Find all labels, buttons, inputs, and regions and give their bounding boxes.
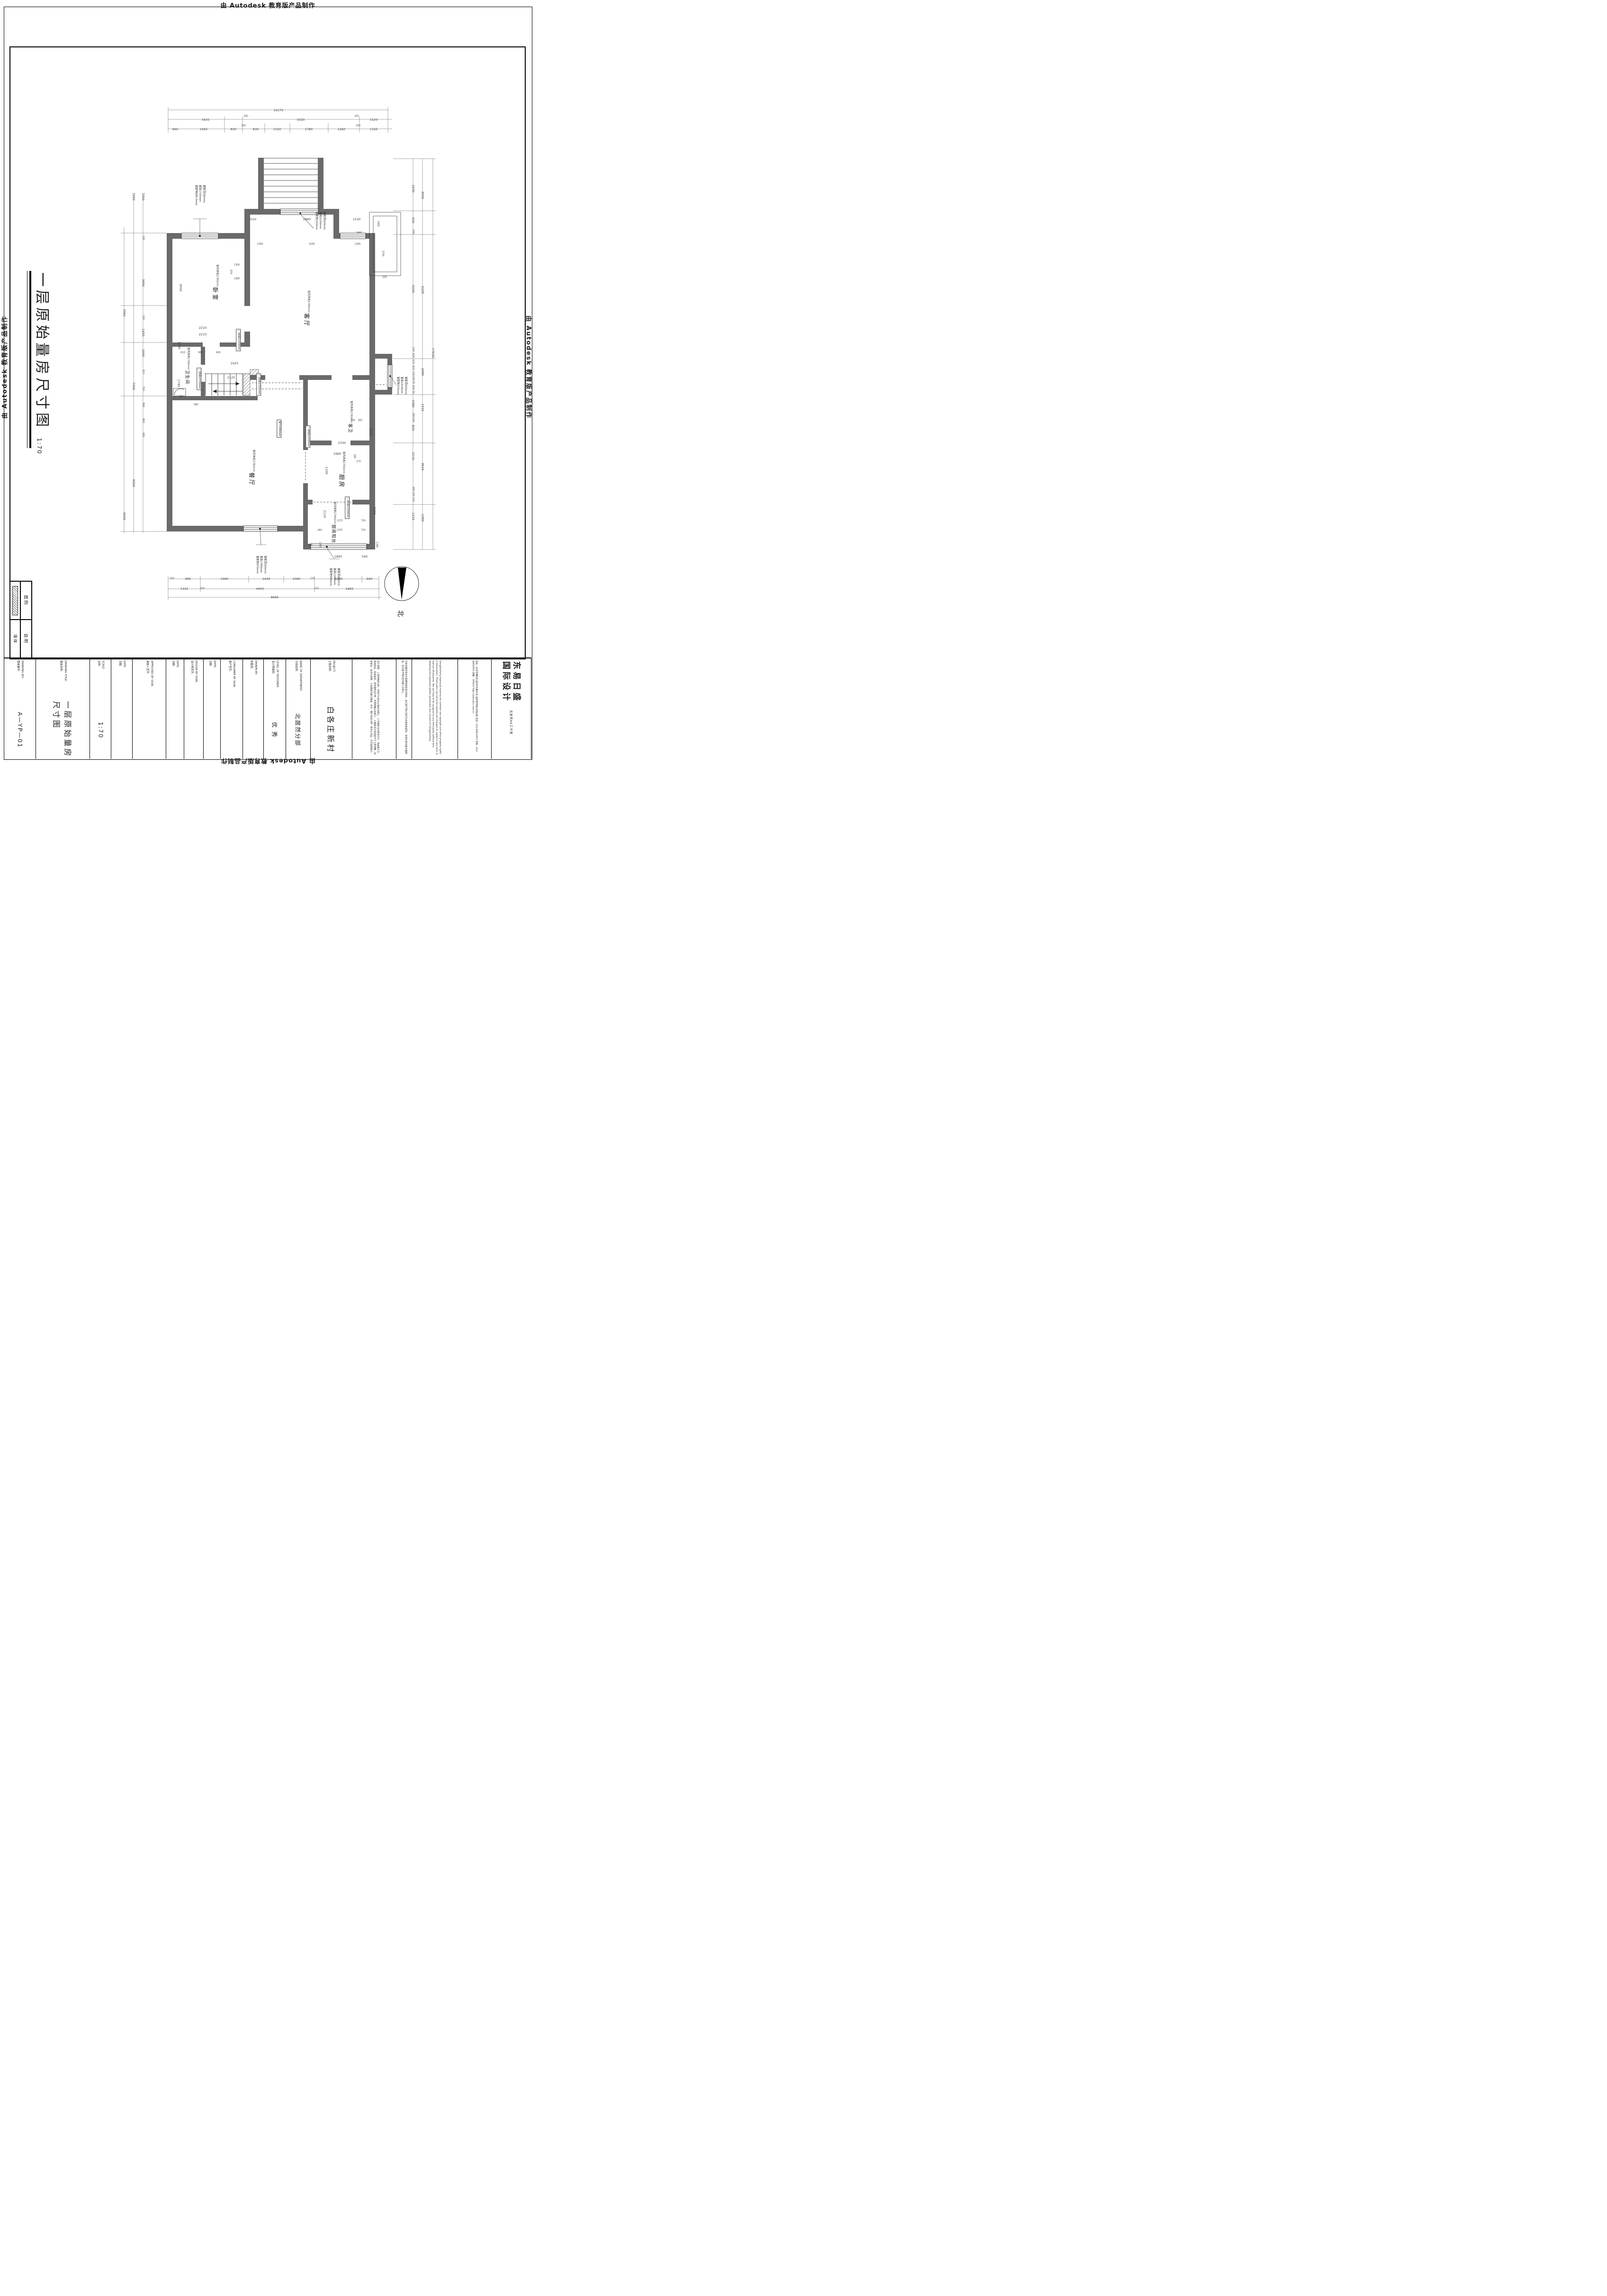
dim-label: 280 [353, 454, 356, 459]
dim-label: 3350 [142, 193, 145, 201]
dim-label: 1260 [355, 243, 361, 246]
door-height-label: 门洞高2150mm [345, 496, 350, 519]
titleblock-field-label: DRAWING NO:图纸编号: [15, 660, 24, 701]
room-label: 客卫室内净高2780mm [348, 401, 354, 433]
room-name: 客厅 [303, 313, 311, 327]
room-name: 厨房 [338, 474, 346, 488]
titleblock-notes: 地址：北京市朝阳区北四环东路65号 居然装饰城2号馆4层 电话：010-8483… [471, 660, 478, 755]
dim-label: 2110 [323, 510, 326, 518]
dim-label: 70 [412, 381, 414, 384]
dim-label: 10175 [274, 109, 284, 112]
window-annotation-line: 窗距顶400mm [322, 212, 326, 230]
dim-label: 5220 [412, 285, 415, 293]
window-annotation: 窗距顶380mm窗高1720mm窗距地680.0mm [194, 185, 206, 206]
window-annotation-line: 窗高1780mm [259, 556, 263, 574]
dim-label: 980 [194, 404, 198, 406]
dim-label: 985 [185, 577, 191, 581]
dim-label: 100 [412, 376, 414, 380]
titleblock-field-value: A—YP—01 [17, 701, 23, 759]
dim-label: 830 [253, 128, 259, 131]
dim-label: 1100 [325, 467, 328, 475]
dim-label: 330 [170, 578, 174, 580]
titleblock-field-label: DATE:日期: [117, 660, 126, 701]
dim-label: 260 [358, 420, 362, 422]
dim-label: 430 [412, 385, 414, 390]
titleblock-cell: DATE:日期: [111, 658, 133, 759]
dim-label: 640 [367, 577, 372, 581]
dim-label: 7450 [132, 382, 135, 390]
dim-label: 913 [142, 369, 144, 374]
dim-label: 1945 [200, 128, 208, 131]
dim-label: 3950 [179, 284, 182, 292]
dim-label: 1410 [421, 404, 424, 412]
dim-label: 820 [412, 425, 415, 431]
titleblock-cell: DRAWING TITLE:图纸名称:一层原始量房尺寸图 [36, 658, 90, 759]
dim-label: 1010 [249, 218, 257, 221]
window-annotation: 窗距顶460mm窗高1340mm窗距地980mm [329, 568, 341, 586]
dim-label: 1150 [273, 128, 281, 131]
window-annotation-line: 窗距顶460mm [336, 568, 340, 586]
titleblock-notes: 东易日盛享有本方案拥有版权及所有权，本方案不得以任何方式修改及复制，未经东易日盛… [400, 660, 407, 755]
window-annotation: 窗距顶400mm窗高1410mm窗距地970mm [396, 377, 408, 395]
window-annotation-line: 窗距地680.0mm [194, 185, 198, 206]
dim-label: 235 [310, 578, 315, 580]
dim-label: 420 [412, 365, 414, 370]
window-annotation-line: 窗距地970mm [396, 377, 400, 395]
dim-label: 1895 [334, 555, 342, 558]
room-height-note: 室内净高2780mm [331, 502, 337, 524]
dim-label: 17630 [431, 348, 435, 358]
dim-label: 150 [412, 371, 414, 376]
dim-label: 3350 [132, 193, 135, 201]
dim-label: 7060 [123, 309, 126, 317]
dim-label: 50 [412, 391, 414, 394]
dim-label: 6050 [123, 513, 126, 521]
dim-label: 1375 [337, 520, 343, 522]
titleblock-cell: 地址：北京市朝阳区北四环东路65号 居然装饰城2号馆4层 电话：010-8483… [458, 658, 492, 759]
dim-label: 200 [200, 588, 205, 590]
titleblock-field-label: NAME OF DEPARTMENT:分部名称: [294, 660, 303, 701]
room-height-note: 室内净高2780mm [185, 347, 191, 369]
dim-label: 1030 [178, 342, 181, 350]
room-name: 卧室 [212, 287, 220, 301]
room-label: 卧室室内净高2780mm [212, 264, 220, 301]
dim-label: 5020 [297, 118, 305, 122]
titleblock-field-label: DRAWING TITLE:图纸名称: [58, 660, 67, 701]
titleblock-field-label: DESIGN BY SIGN:设计师签字: [189, 660, 198, 701]
dim-label: 420 [412, 353, 414, 358]
dim-label: 400 [412, 486, 414, 491]
dim-label: 8665 [271, 596, 279, 599]
dim-label: 360 [317, 530, 322, 532]
dim-label: 730 [361, 530, 366, 532]
title-block: DRAWING NO:图纸编号:A—YP—01DRAWING TITLE:图纸名… [4, 657, 531, 759]
dim-label: 330 [179, 396, 183, 398]
titleblock-cell: APPROVED BY SIGN:审核人签字: [133, 658, 166, 759]
room-name: 卫生间 [185, 370, 191, 384]
window-annotation-line: 窗距地980mm [329, 568, 332, 586]
dim-label: 920 [412, 217, 415, 223]
dim-label: 1450 [142, 329, 145, 337]
room-label: 厨房阳台室内净高2780mm [331, 502, 337, 543]
window-annotation-line: 窗高1410mm [400, 377, 404, 395]
dim-label: 130 [314, 588, 319, 590]
dim-label: 750 [142, 386, 144, 391]
dim-label: 1780 [305, 128, 313, 131]
room-height-note: 室内净高2780mm [212, 264, 220, 287]
room-label: 厨房室内净高2780mm [338, 451, 346, 488]
titleblock-cell: Dongyirisheng Expressly reserves its com… [412, 658, 458, 759]
dim-label: 900 [198, 352, 203, 354]
dim-label: 1460 [356, 232, 362, 234]
room-label: 卫生间室内净高2780mm [185, 347, 191, 384]
dim-label: 1320 [370, 128, 378, 131]
dim-label: 1430 [262, 577, 270, 581]
titleblock-cell: DRAWING NO:图纸编号:A—YP—01 [4, 658, 36, 759]
dim-label: 2210 [199, 326, 207, 330]
window-annotation-line: 窗高1720mm [198, 185, 202, 206]
dim-label: 200 [241, 125, 246, 127]
titleblock-field-label: DRAWN BY:制图员: [249, 660, 258, 701]
dim-label: 860 [142, 403, 144, 407]
dim-label: 800 [142, 418, 144, 423]
room-name: 餐厅 [248, 472, 256, 486]
titleblock-cell: PROJECT:工程名称:白各庄新村 [311, 658, 353, 759]
dim-label: 125 [308, 545, 313, 547]
dim-label: 2210 [199, 333, 207, 336]
dim-label: 1380 [234, 278, 240, 280]
dim-label: 200 [354, 116, 359, 118]
titleblock-field-label: PROJECT:工程名称: [327, 660, 336, 701]
room-label: 餐厅室内净高2780mm [248, 450, 256, 486]
titleblock-field-label: LEVEL OF DESIGNER:设计师级别: [270, 660, 279, 701]
dim-label: 270 [356, 461, 361, 463]
dim-label: 1300 [234, 264, 240, 267]
window-annotation-line: 窗距地150mm [314, 212, 318, 230]
dim-label: 200 [412, 229, 414, 234]
beam-height-label: 梁下290mm [277, 420, 281, 438]
dim-label: 1930 [309, 243, 315, 246]
dim-label: 1385 [319, 542, 321, 548]
titleblock-cell: DESIGN BY SIGN:设计师签字: [184, 658, 204, 759]
room-name: 厨房阳台 [331, 524, 337, 543]
window-annotation: 窗距顶400mm窗高2230mm窗距地150mm [314, 212, 326, 230]
room-height-note: 室内净高2780mm [303, 290, 311, 313]
dim-label: 150 [412, 347, 414, 351]
dim-label: 100 [412, 417, 414, 422]
titleblock-notes: Dongyirisheng Expressly reserves its com… [428, 660, 441, 755]
window-annotation-line: 窗距顶380mm [202, 185, 206, 206]
dim-label: 280 [412, 413, 414, 417]
plan-labels-layer: 1017534355020152020020066019458308301150… [0, 0, 536, 765]
dim-label: 1080 [412, 400, 415, 408]
dim-label: 1210 [412, 513, 415, 521]
window-annotation-line: 窗距地970mm [255, 556, 259, 574]
dim-label: 100 [142, 315, 144, 320]
titleblock-cell: SCALE:比例:1:70 [90, 658, 111, 759]
dim-label: 2330 [338, 441, 346, 445]
room-height-note: 室内净高2780mm [348, 401, 354, 423]
dim-label: 200 [243, 116, 248, 118]
titleblock-notes: 设计说明： 1.除特殊标注外，所有尺寸标注以毫米为单位。 2.平面标注为参考尺寸… [369, 660, 379, 755]
dim-label: 1925 [231, 362, 239, 365]
titleblock-field-label: DATE:日期: [207, 660, 216, 701]
dim-label: 540 [362, 555, 368, 558]
titleblock-cell: NAME OF DEPARTMENT:分部名称:北居然分部 [286, 658, 311, 759]
dim-label: 730 [361, 520, 366, 522]
company-name: 东易日盛 国际设计 [501, 661, 521, 710]
dim-label: 200 [142, 235, 144, 240]
titleblock-field-label: CONSUMER BY SIGN:客户签字: [227, 660, 236, 701]
dim-label: 660 [172, 128, 178, 131]
door-height-label: 门洞高2150mm [197, 368, 201, 390]
titleblock-cell: 东易日盛享有本方案拥有版权及所有权，本方案不得以任何方式修改及复制，未经东易日盛… [396, 658, 412, 759]
dim-label: 1520 [370, 118, 378, 122]
titleblock-field-label: DATE:日期: [171, 660, 180, 701]
room-label: 客厅室内净高2780mm [303, 290, 311, 327]
dim-label: 3950 [142, 279, 145, 287]
dim-label: 1375 [337, 530, 343, 532]
dim-label: 5220 [421, 286, 424, 294]
dim-label: 150 [412, 497, 414, 502]
dim-label: 2110 [412, 452, 415, 460]
dim-label: 600 [216, 352, 221, 354]
dim-label: 4450 [256, 587, 264, 591]
window-annotation-line: 窗高2230mm [318, 212, 322, 230]
titleblock-field-value: 1:70 [97, 701, 104, 759]
dim-label: 3550 [421, 191, 424, 199]
dim-label: 1385 [376, 542, 378, 548]
dim-label: 2080 [421, 368, 424, 376]
titleblock-cell: LEVEL OF DESIGNER:设计师级别:优 秀 [264, 658, 286, 759]
dim-label: 3435 [202, 118, 210, 122]
titleblock-cell: DATE:日期: [204, 658, 221, 759]
dim-label: 1300 [257, 243, 263, 246]
dim-label: 1530 [353, 218, 361, 221]
dim-label: 6050 [132, 479, 135, 487]
dim-label: 2430 [412, 185, 415, 193]
titleblock-field-label: SCALE:比例: [96, 660, 105, 701]
window-annotation-line: 窗高1340mm [332, 568, 336, 586]
company-studio: 北居然A6工作室 [509, 710, 513, 759]
dim-label: 200 [356, 125, 360, 127]
door-height-label: 门洞高2150mm [305, 425, 310, 448]
dim-label: 926 [230, 270, 232, 274]
dim-label: 1260 [338, 128, 346, 131]
dim-label: 1315 [180, 587, 189, 591]
titleblock-field-label: APPROVED BY SIGN:审核人签字: [145, 660, 154, 701]
titleblock-cell: CONSUMER BY SIGN:客户签字: [221, 658, 243, 759]
dim-label: 1360 [421, 514, 424, 522]
titleblock-field-value: 一层原始量房尺寸图 [52, 701, 74, 759]
titleblock-cell: 东易日盛 国际设计北居然A6工作室 [492, 658, 531, 759]
titleblock-field-value: 白各庄新村 [325, 701, 337, 759]
titleblock-cell: DATE:日期: [166, 658, 184, 759]
dim-label: 2125 [227, 376, 235, 379]
dim-label: 1960 [221, 577, 229, 581]
dim-label: 1060 [293, 577, 301, 581]
dim-label: 2860 [303, 218, 311, 221]
door-height-label: 门洞高2150mm [236, 329, 241, 351]
dim-label: 830 [231, 128, 236, 131]
door-height-label: 门洞高2150mm [256, 373, 261, 396]
titleblock-field-value: 北居然分部 [294, 701, 302, 759]
dim-label: 200 [412, 492, 414, 496]
titleblock-cell: DRAWN BY:制图员: [243, 658, 264, 759]
dim-label: 2465 [346, 587, 354, 591]
dim-label: 1466 [377, 221, 379, 227]
dim-label: 600 [142, 432, 144, 437]
dim-label: 1740 [177, 379, 180, 387]
titleblock-cell: 设计说明： 1.除特殊标注外，所有尺寸标注以毫米为单位。 2.平面标注为参考尺寸… [352, 658, 396, 759]
dim-label: 3330 [373, 507, 376, 515]
window-annotation-line: 窗距顶400mm [404, 377, 407, 395]
dim-label: 1000 [142, 349, 145, 357]
dim-label: 330 [382, 277, 387, 279]
dim-label: 1410 [369, 428, 373, 436]
room-name: 客卫 [348, 423, 354, 433]
window-annotation-line: 窗距顶300mm [263, 556, 267, 574]
drawing-sheet: 由 Autodesk 教育版产品制作 由 Autodesk 教育版产品制作 由 … [0, 0, 536, 765]
window-annotation: 窗距顶300mm窗高1780mm窗距地970mm [255, 556, 267, 574]
dim-label: 3240 [382, 251, 384, 257]
room-height-note: 室内净高2780mm [248, 450, 256, 472]
dim-label: 3610 [421, 463, 424, 471]
dim-label: 310 [412, 359, 414, 364]
titleblock-field-value: 优 秀 [271, 701, 279, 759]
room-height-note: 室内净高2780mm [338, 451, 346, 474]
